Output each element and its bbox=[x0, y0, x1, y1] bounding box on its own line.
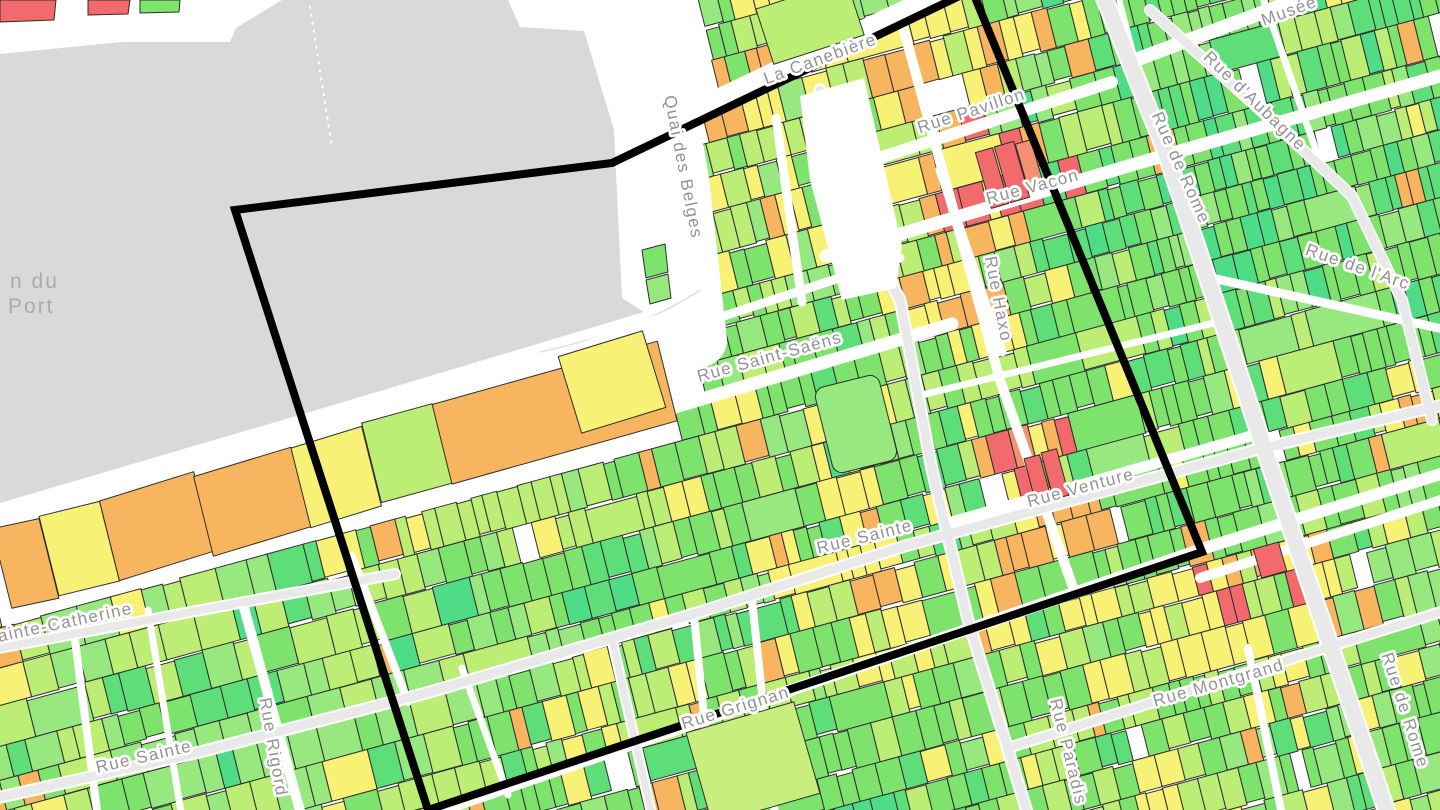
svg-text:n du: n du bbox=[10, 270, 59, 293]
svg-text:Port: Port bbox=[8, 295, 55, 318]
